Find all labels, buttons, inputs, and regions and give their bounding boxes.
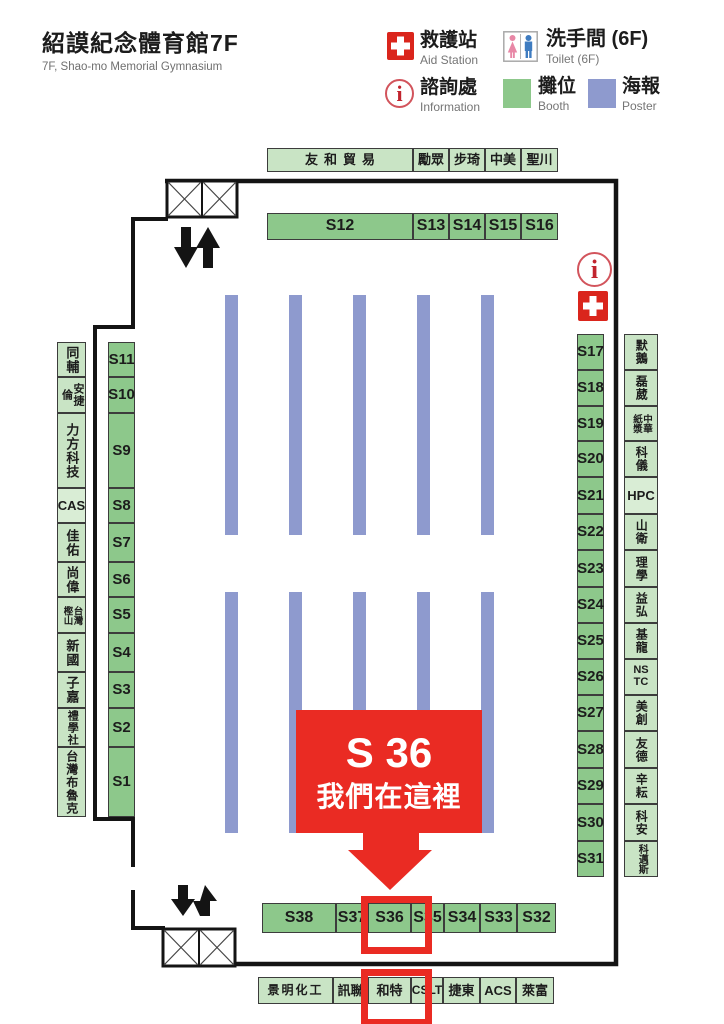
- company-booth: 磊葳: [624, 370, 658, 406]
- company-booth: 步琦: [449, 148, 485, 172]
- callout-booth-number: S 36: [346, 732, 432, 774]
- company-booth: 友和貿易: [267, 148, 413, 172]
- company-booth: 益弘: [624, 587, 658, 623]
- company-booth: 理學: [624, 550, 658, 587]
- booth-s6: S6: [108, 562, 135, 597]
- map-information-icon: i: [577, 252, 612, 287]
- poster-bar: [225, 295, 238, 535]
- booth-s38: S38: [262, 903, 336, 933]
- booth-s29: S29: [577, 768, 604, 804]
- booth-s1: S1: [108, 747, 135, 817]
- stairs-icon-bottom: [163, 929, 235, 966]
- company-booth: 同輔: [57, 342, 86, 377]
- company-booth: 新國: [57, 633, 86, 672]
- wall-left-lower: [133, 890, 165, 928]
- poster-bar: [481, 592, 494, 833]
- booth-s20: S20: [577, 441, 604, 477]
- company-booth: NS TC: [624, 659, 658, 695]
- company-booth: 安捷倫: [57, 377, 86, 413]
- company-booth: 台灣 樫山: [57, 597, 86, 633]
- company-booth: 科邁斯: [624, 841, 658, 877]
- company-booth: 台灣布魯克: [57, 747, 86, 817]
- company-booth: 景明化工: [258, 977, 333, 1004]
- company-booth: 默鵝: [624, 334, 658, 370]
- company-booth: ACS: [480, 977, 516, 1004]
- booth-s11: S11: [108, 342, 135, 377]
- highlight-frame-company: [361, 969, 432, 1024]
- booth-s19: S19: [577, 406, 604, 441]
- map-information-icon-glyph: i: [591, 255, 598, 285]
- booth-s28: S28: [577, 731, 604, 768]
- booth-s33: S33: [480, 903, 517, 933]
- poster-bar: [289, 295, 302, 535]
- company-booth: 友德: [624, 731, 658, 768]
- stairs-icon-top: [167, 181, 237, 217]
- booth-s23: S23: [577, 550, 604, 587]
- company-booth: 佳佑: [57, 523, 86, 562]
- booth-s5: S5: [108, 597, 135, 633]
- booth-s26: S26: [577, 659, 604, 695]
- down-arrow-icon-top: [174, 227, 198, 268]
- booth-s17: S17: [577, 334, 604, 370]
- company-booth: 科安: [624, 804, 658, 841]
- booth-s4: S4: [108, 633, 135, 672]
- booth-s14: S14: [449, 213, 485, 240]
- poster-bar: [225, 592, 238, 833]
- company-booth: 山衛: [624, 514, 658, 550]
- booth-s9: S9: [108, 413, 135, 488]
- company-booth: 中華 紙漿: [624, 406, 658, 441]
- booth-s8: S8: [108, 488, 135, 523]
- booth-s10: S10: [108, 377, 135, 413]
- company-booth: HPC: [624, 477, 658, 514]
- down-arrow-icon-bottom: [171, 885, 195, 916]
- booth-s25: S25: [577, 623, 604, 659]
- company-booth: 勵眾: [413, 148, 449, 172]
- company-booth: 萊富: [516, 977, 554, 1004]
- booth-s18: S18: [577, 370, 604, 406]
- company-booth: 美創: [624, 695, 658, 731]
- booth-s15: S15: [485, 213, 521, 240]
- company-booth: 科儀: [624, 441, 658, 477]
- poster-bar: [417, 295, 430, 535]
- booth-s32: S32: [517, 903, 556, 933]
- booth-s31: S31: [577, 841, 604, 877]
- booth-s12: S12: [267, 213, 413, 240]
- booth-s2: S2: [108, 708, 135, 747]
- booth-s21: S21: [577, 477, 604, 514]
- company-booth: 辛耘: [624, 768, 658, 804]
- booth-s24: S24: [577, 587, 604, 623]
- company-booth: 中美: [485, 148, 521, 172]
- booth-s3: S3: [108, 672, 135, 708]
- poster-bar: [481, 295, 494, 535]
- company-booth: 子嘉: [57, 672, 86, 708]
- location-callout: S 36 我們在這裡: [296, 710, 482, 833]
- booth-s34: S34: [444, 903, 480, 933]
- company-booth: 捷東: [443, 977, 480, 1004]
- booth-s22: S22: [577, 514, 604, 550]
- booth-s7: S7: [108, 523, 135, 562]
- booth-s27: S27: [577, 695, 604, 731]
- company-booth: 聖川: [521, 148, 558, 172]
- booth-s30: S30: [577, 804, 604, 841]
- highlight-frame-s36: [361, 896, 432, 954]
- company-booth: 尚偉: [57, 562, 86, 597]
- callout-down-arrow-icon: [340, 830, 440, 892]
- company-booth: 禮學社: [57, 708, 86, 747]
- booth-s13: S13: [413, 213, 449, 240]
- callout-we-are-here-text: 我們在這裡: [316, 783, 461, 811]
- company-booth: 基龍: [624, 623, 658, 659]
- company-booth: 力方科技: [57, 413, 86, 488]
- map-aid-station-icon: [578, 291, 608, 321]
- poster-bar: [353, 295, 366, 535]
- up-arrow-icon-bottom: [193, 885, 217, 916]
- up-arrow-icon-top: [196, 227, 220, 268]
- floor-map-page: 紹謨紀念體育館7F 7F, Shao-mo Memorial Gymnasium…: [0, 0, 724, 1024]
- company-booth: CAS: [57, 488, 86, 523]
- booth-s16: S16: [521, 213, 558, 240]
